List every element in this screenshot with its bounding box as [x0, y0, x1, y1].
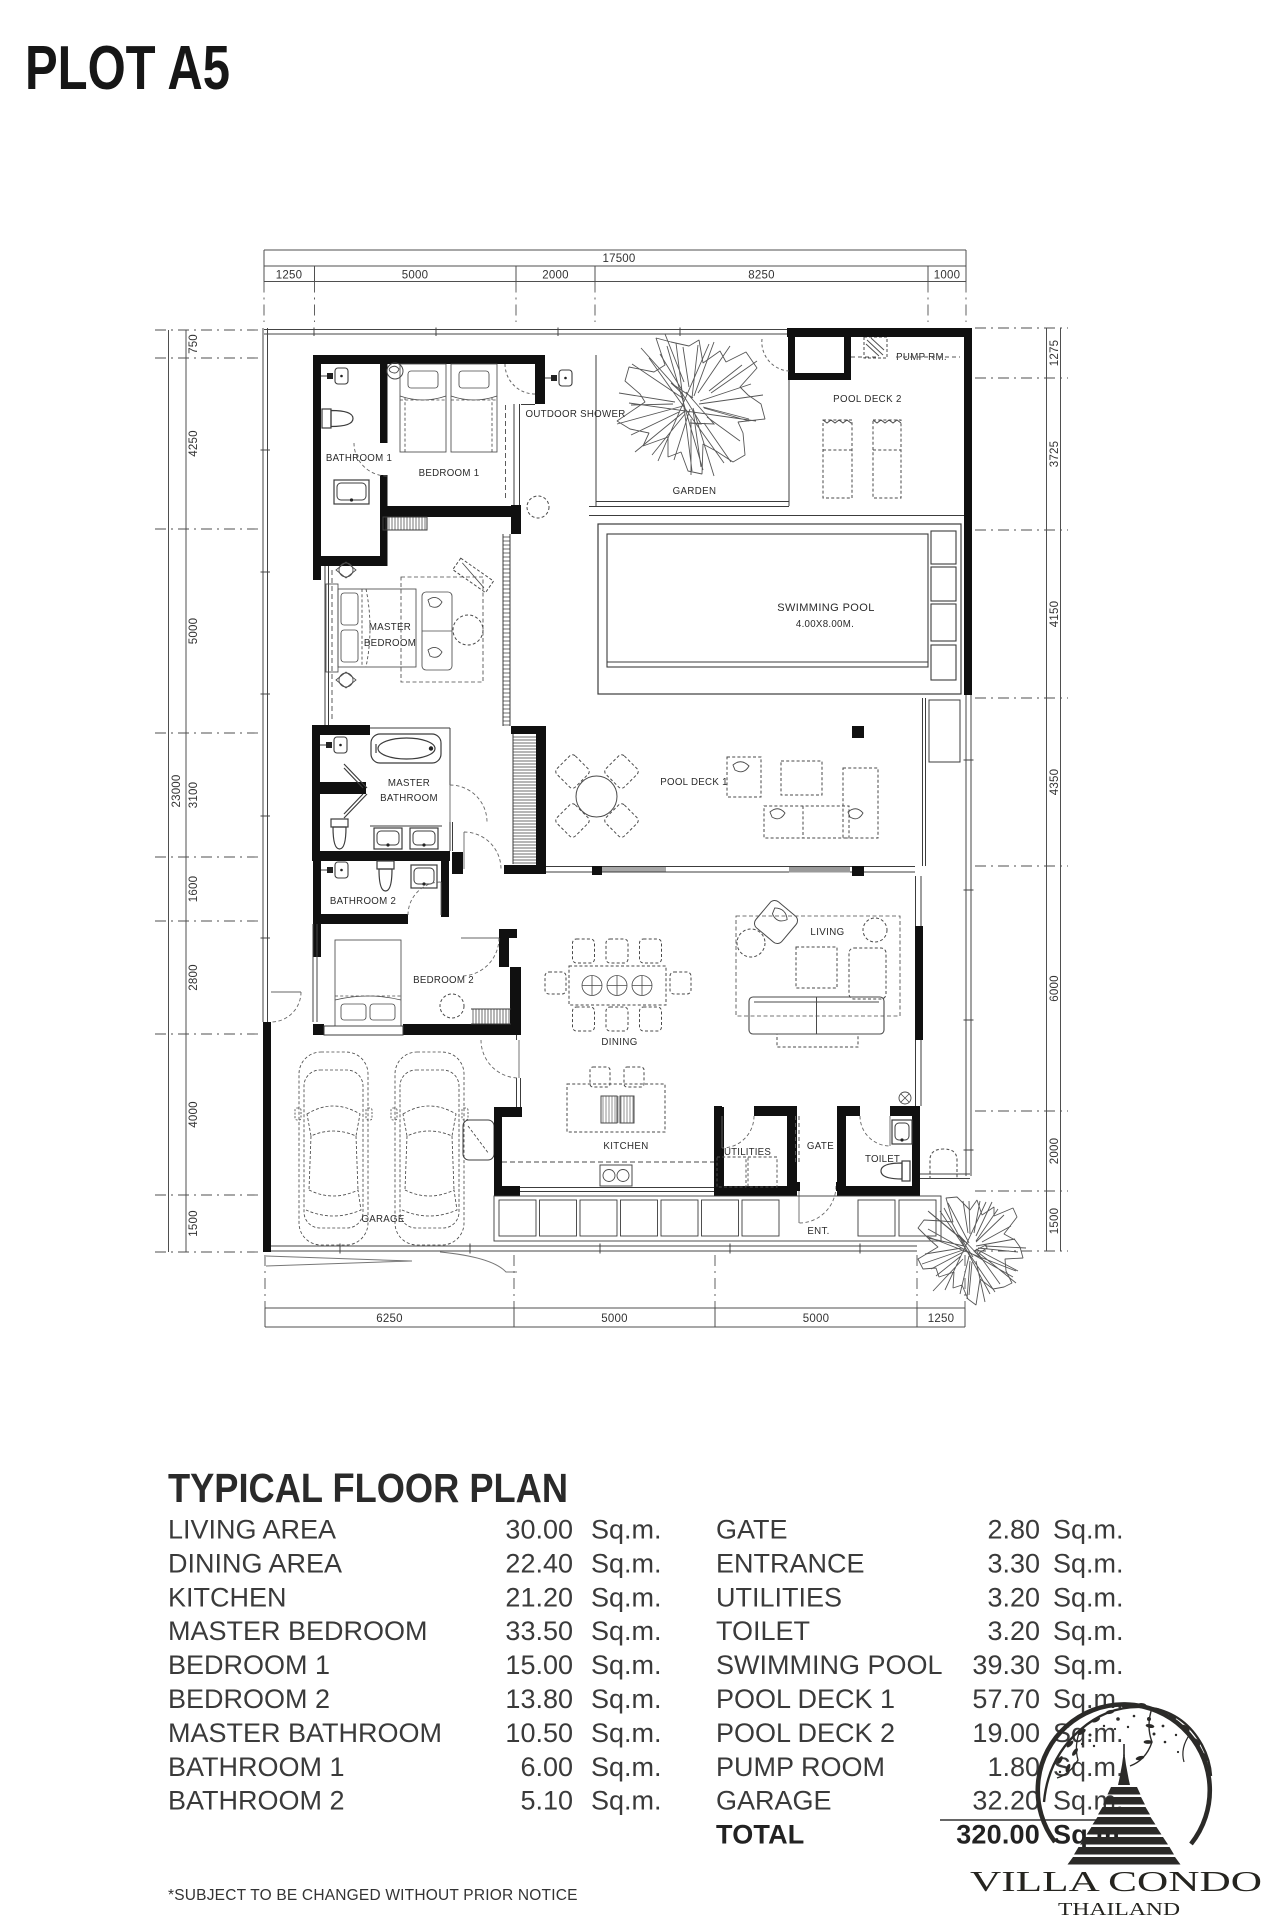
svg-text:UTILITIES: UTILITIES [724, 1147, 771, 1158]
svg-text:1600: 1600 [188, 876, 200, 902]
svg-text:1500: 1500 [1049, 1208, 1061, 1234]
svg-text:6000: 6000 [1049, 975, 1061, 1001]
svg-text:PLOT A5: PLOT A5 [25, 34, 230, 103]
svg-text:Sq.m.: Sq.m. [591, 1786, 662, 1816]
svg-text:KITCHEN: KITCHEN [603, 1141, 648, 1152]
svg-text:BATHROOM 2: BATHROOM 2 [330, 896, 396, 907]
svg-text:5000: 5000 [188, 618, 200, 644]
svg-text:POOL DECK 1: POOL DECK 1 [716, 1684, 895, 1714]
svg-text:ENTRANCE: ENTRANCE [716, 1548, 865, 1578]
svg-text:SWIMMING POOL: SWIMMING POOL [716, 1650, 943, 1680]
svg-text:LIVING: LIVING [810, 927, 844, 938]
svg-text:Sq.m.: Sq.m. [1053, 1515, 1124, 1545]
svg-text:GARAGE: GARAGE [716, 1786, 832, 1816]
svg-text:4350: 4350 [1049, 769, 1061, 795]
svg-text:8250: 8250 [748, 270, 774, 282]
svg-text:Sq.m.: Sq.m. [1053, 1582, 1124, 1612]
svg-text:4150: 4150 [1049, 601, 1061, 627]
svg-text:GATE: GATE [716, 1515, 788, 1545]
svg-text:BATHROOM 2: BATHROOM 2 [168, 1786, 345, 1816]
svg-text:Sq.m.: Sq.m. [591, 1752, 662, 1782]
svg-text:KITCHEN: KITCHEN [168, 1582, 287, 1612]
svg-text:DINING: DINING [601, 1037, 637, 1048]
svg-text:BEDROOM 1: BEDROOM 1 [168, 1650, 330, 1680]
svg-text:UTILITIES: UTILITIES [716, 1582, 842, 1612]
svg-text:GATE: GATE [807, 1141, 834, 1152]
svg-text:32.20: 32.20 [972, 1786, 1040, 1816]
svg-text:ENT.: ENT. [807, 1226, 829, 1237]
svg-text:Sq.m.: Sq.m. [591, 1515, 662, 1545]
svg-text:Sq.m.: Sq.m. [1053, 1650, 1124, 1680]
svg-text:THAILAND: THAILAND [1058, 1899, 1180, 1919]
svg-text:33.50: 33.50 [505, 1616, 573, 1646]
svg-text:5000: 5000 [402, 270, 428, 282]
svg-text:6250: 6250 [376, 1313, 402, 1325]
svg-text:30.00: 30.00 [505, 1515, 573, 1545]
svg-text:3.20: 3.20 [987, 1616, 1040, 1646]
svg-text:Sq.m.: Sq.m. [1053, 1752, 1124, 1782]
svg-text:TOTAL: TOTAL [716, 1820, 805, 1850]
svg-text:BEDROOM: BEDROOM [364, 638, 416, 649]
svg-text:Sq.m.: Sq.m. [591, 1582, 662, 1612]
svg-text:22.40: 22.40 [505, 1548, 573, 1578]
svg-text:2800: 2800 [188, 964, 200, 990]
svg-text:MASTER BATHROOM: MASTER BATHROOM [168, 1718, 442, 1748]
svg-text:TYPICAL FLOOR PLAN: TYPICAL FLOOR PLAN [168, 1465, 568, 1511]
svg-text:5.10: 5.10 [520, 1786, 573, 1816]
svg-text:1250: 1250 [276, 270, 302, 282]
svg-text:BEDROOM 2: BEDROOM 2 [168, 1684, 330, 1714]
svg-text:5000: 5000 [803, 1313, 829, 1325]
svg-text:4250: 4250 [188, 430, 200, 456]
svg-text:DINING AREA: DINING AREA [168, 1548, 342, 1578]
svg-text:13.80: 13.80 [505, 1684, 573, 1714]
svg-text:1250: 1250 [928, 1313, 954, 1325]
svg-text:Sq.m.: Sq.m. [1053, 1548, 1124, 1578]
svg-text:POOL DECK 1: POOL DECK 1 [660, 777, 728, 788]
svg-text:Sq.m.: Sq.m. [1053, 1616, 1124, 1646]
svg-text:2000: 2000 [1049, 1138, 1061, 1164]
svg-text:Sq.m.: Sq.m. [591, 1650, 662, 1680]
svg-text:1500: 1500 [188, 1210, 200, 1236]
svg-text:BEDROOM 2: BEDROOM 2 [413, 975, 474, 986]
svg-text:19.00: 19.00 [972, 1718, 1040, 1748]
svg-text:2.80: 2.80 [987, 1515, 1040, 1545]
svg-text:3725: 3725 [1049, 441, 1061, 467]
svg-text:39.30: 39.30 [972, 1650, 1040, 1680]
svg-text:VILLA CONDO: VILLA CONDO [970, 1866, 1262, 1898]
svg-text:MASTER: MASTER [388, 778, 430, 789]
svg-text:LIVING AREA: LIVING AREA [168, 1515, 336, 1545]
svg-text:MASTER BEDROOM: MASTER BEDROOM [168, 1616, 428, 1646]
svg-text:SWIMMING POOL: SWIMMING POOL [777, 602, 874, 614]
svg-text:BATHROOM 1: BATHROOM 1 [326, 453, 392, 464]
svg-text:OUTDOOR SHOWER: OUTDOOR SHOWER [526, 409, 626, 420]
svg-text:17500: 17500 [603, 253, 636, 265]
svg-text:6.00: 6.00 [520, 1752, 573, 1782]
svg-text:MASTER: MASTER [369, 622, 411, 633]
svg-text:Sq.m.: Sq.m. [591, 1718, 662, 1748]
svg-text:POOL DECK 2: POOL DECK 2 [833, 394, 902, 405]
svg-text:5000: 5000 [601, 1313, 627, 1325]
svg-text:GARDEN: GARDEN [673, 486, 717, 497]
svg-text:BATHROOM 1: BATHROOM 1 [168, 1752, 345, 1782]
svg-text:57.70: 57.70 [972, 1684, 1040, 1714]
svg-text:15.00: 15.00 [505, 1650, 573, 1680]
svg-text:TOILET: TOILET [716, 1616, 810, 1646]
svg-text:10.50: 10.50 [505, 1718, 573, 1748]
svg-text:1.80: 1.80 [987, 1752, 1040, 1782]
svg-text:BEDROOM 1: BEDROOM 1 [419, 468, 480, 479]
svg-text:Sq.m.: Sq.m. [591, 1684, 662, 1714]
svg-text:Sq.m.: Sq.m. [591, 1616, 662, 1646]
svg-text:1000: 1000 [934, 270, 960, 282]
svg-text:POOL DECK 2: POOL DECK 2 [716, 1718, 895, 1748]
svg-text:BATHROOM: BATHROOM [380, 793, 438, 804]
svg-text:750: 750 [188, 334, 200, 354]
svg-text:PUMP ROOM: PUMP ROOM [716, 1752, 885, 1782]
svg-text:4000: 4000 [188, 1101, 200, 1127]
svg-text:Sq.m.: Sq.m. [591, 1548, 662, 1578]
svg-text:23000: 23000 [171, 775, 183, 808]
svg-text:4.00X8.00M.: 4.00X8.00M. [796, 619, 854, 630]
svg-text:2000: 2000 [542, 270, 568, 282]
svg-text:3100: 3100 [188, 782, 200, 808]
svg-text:1275: 1275 [1049, 340, 1061, 366]
svg-text:3.20: 3.20 [987, 1582, 1040, 1612]
svg-text:3.30: 3.30 [987, 1548, 1040, 1578]
svg-text:320.00: 320.00 [956, 1820, 1040, 1850]
svg-text:*SUBJECT TO BE CHANGED WITHOUT: *SUBJECT TO BE CHANGED WITHOUT PRIOR NOT… [168, 1887, 578, 1904]
svg-text:21.20: 21.20 [505, 1582, 573, 1612]
